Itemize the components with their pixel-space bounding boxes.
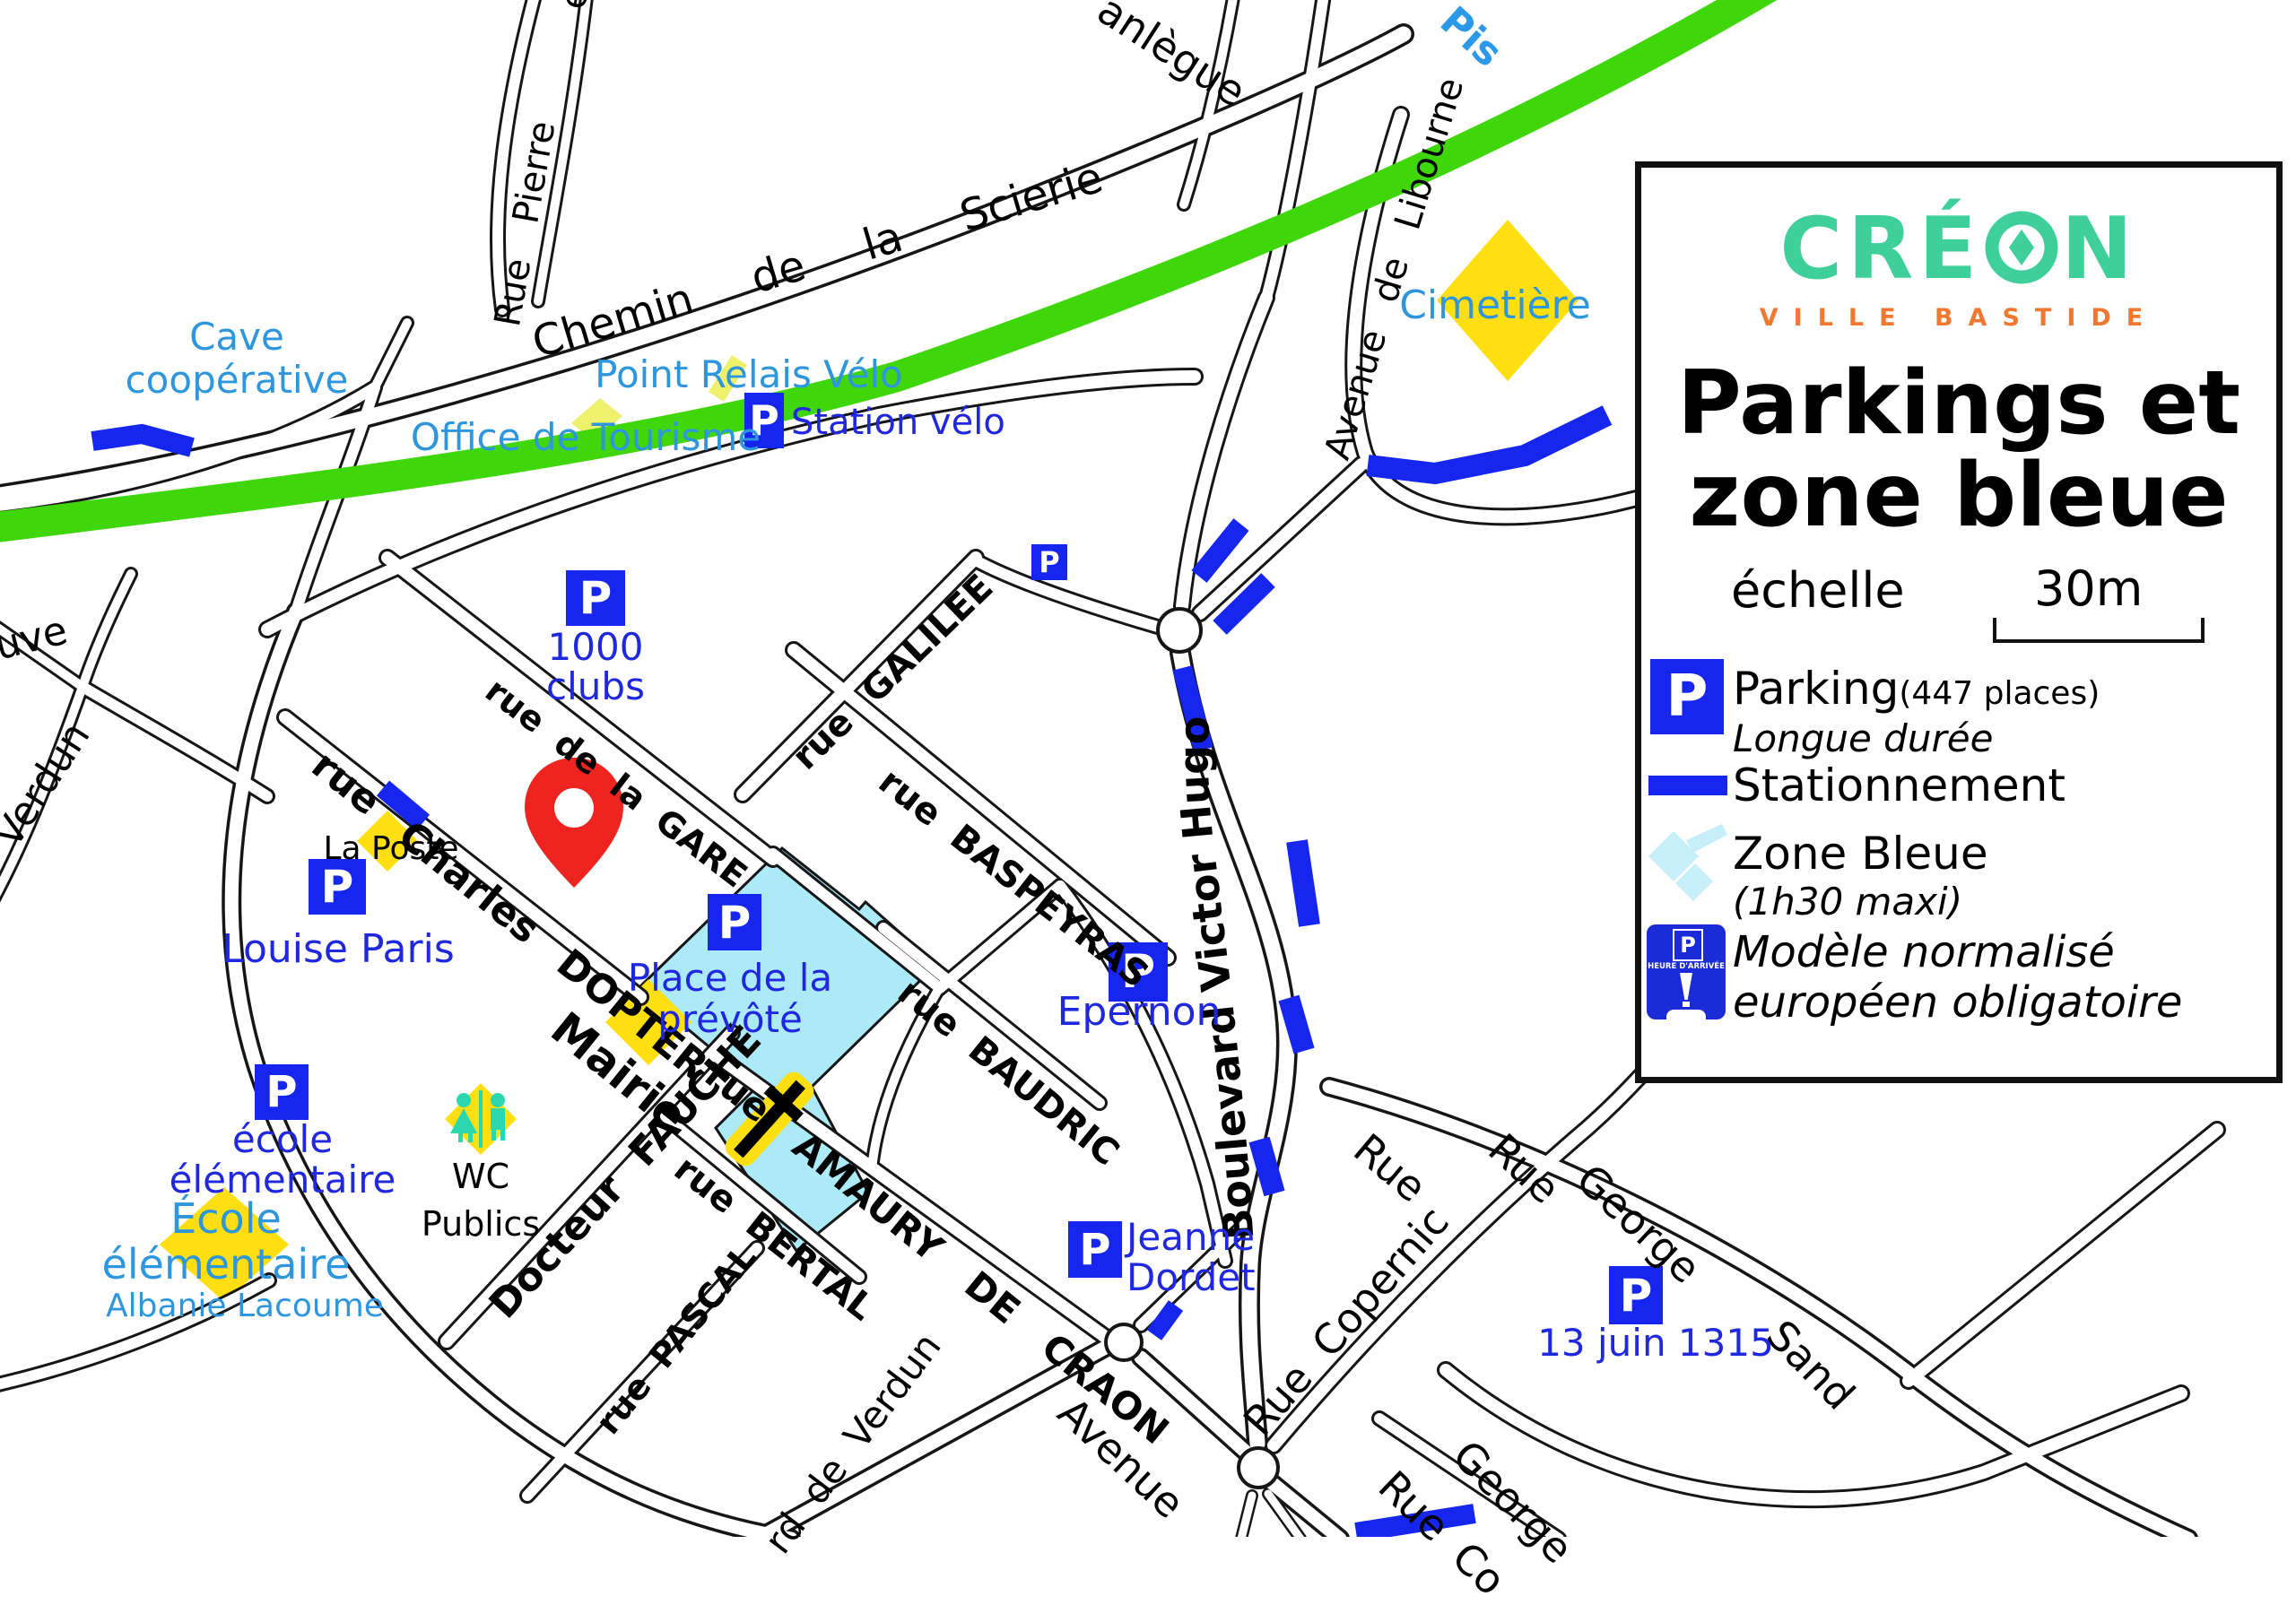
poi-label-albanie-lacoume: Albanie Lacoume [92,1289,397,1323]
disc-dial [1666,1010,1706,1024]
legend-parking-row: Parking(447 places) [1733,663,2100,715]
poi-label-jeanne-dordet: Jeanne Dordet [1126,1218,1256,1297]
parking-icon: P [1068,1221,1122,1278]
legend-stationnement-label: Stationnement [1733,759,2066,811]
poi-label-la-poste: La Poste [301,832,481,866]
disc-p-box: P [1673,929,1703,961]
p-glyph: P [718,897,752,949]
legend-stationnement-bar [1648,776,1727,795]
scale-label: échelle [1731,562,1905,619]
logo-o-icon [1982,206,2061,285]
parking-icon: P [708,894,761,950]
creon-logo: CRÉN [1641,200,2276,299]
legend-parking-icon: P [1650,659,1724,734]
logo-text-1: CRÉ [1779,200,1982,299]
legend-zone-label: Zone Bleue [1733,828,1988,880]
poi-label-cimetiere: Cimetière [1361,285,1630,326]
legend-disc-icon: P HEURE D'ARRIVÉE [1647,924,1726,1019]
poi-label-ecole-elementaire-y: École élémentaire [91,1196,361,1287]
p-glyph: P [321,861,354,913]
poi-label-louise-paris: Louise Paris [204,929,473,970]
p-glyph: P [1680,933,1696,958]
poi-label-ecole-elementaire-p: école élémentaire [148,1119,417,1201]
legend-zone-sub: (1h30 maxi) [1733,880,1962,924]
p-glyph: P [265,1067,297,1117]
poi-label-office-tourisme: Office de Tourisme [406,418,765,457]
parking-icon: P [1031,544,1067,580]
poi-label-1000-clubs: 1000 clubs [506,628,685,707]
disc-exclamation-dot [1683,1002,1690,1007]
scale-bar [1993,618,2205,643]
p-glyph: P [1079,1225,1110,1275]
p-glyph: P [1666,664,1709,730]
parking-icon: P [255,1064,309,1120]
poi-label-station-velo: Station vélo [791,403,1005,441]
map-page: { "colors": { "poi_light_blue": "#2e96dd… [0,0,2296,1537]
poi-label-point-relais-velo: Point Relais Vélo [570,355,928,395]
parking-icon: P [1609,1266,1663,1324]
p-glyph: P [1039,545,1059,579]
p-glyph: P [1620,1270,1653,1322]
legend-parking-places: (447 places) [1899,675,2100,712]
legend-parking-sub: Longue durée [1733,716,1993,760]
logo-subtitle: VILLE BASTIDE [1641,304,2276,332]
scale-value: 30m [2034,560,2143,617]
poi-label-wc-publics: WC Publics [391,1153,570,1248]
p-glyph: P [579,572,613,624]
disc-caption: HEURE D'ARRIVÉE [1647,962,1726,971]
legend-modele-label: Modèle normalisé européen obligatoire [1733,928,2182,1028]
legend-panel: CRÉN VILLE BASTIDE Parkings et zone bleu… [1635,161,2283,1083]
parking-icon: P [566,570,625,626]
parking-icon: P [309,859,366,915]
legend-zone-bleue-icon [1648,817,1735,907]
poi-label-epernon: Epernon [1049,992,1229,1033]
street-label-boulevard-victor-hugo: Boulevard Victor Hugo [1170,715,1263,1241]
legend-parking-label: Parking [1733,663,1899,715]
disc-exclamation [1680,973,1692,1000]
poi-label-cave-cooperative: Cave coopérative [102,316,371,403]
poi-label-13-juin-1315: 13 juin 1315 [1521,1323,1790,1363]
logo-text-2: N [2061,200,2138,299]
poi-label-place-prevote: Place de la prévôté [596,958,865,1040]
legend-title: Parkings et zone bleue [1641,358,2276,542]
